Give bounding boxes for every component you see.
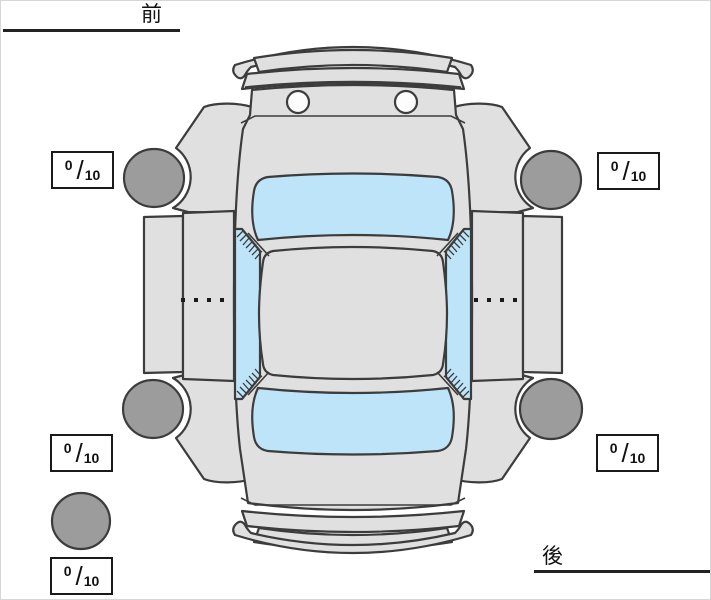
door-panel-left: [183, 211, 234, 381]
tire-score-front-right: 0 / 10: [597, 152, 660, 190]
headlight-washer-right: [395, 91, 417, 113]
tire-score-spare: 0 / 10: [50, 557, 113, 595]
score-value: 0: [64, 563, 72, 579]
rocker-panel-right: [523, 216, 562, 373]
score-max: 10: [630, 450, 646, 466]
tire-score-rear-left: 0 / 10: [50, 434, 113, 472]
score-max: 10: [84, 450, 100, 466]
score-max: 10: [84, 573, 100, 589]
score-separator: /: [621, 438, 628, 469]
rear-fascia: [242, 511, 464, 532]
spare-tire: [52, 493, 110, 549]
score-value: 0: [65, 157, 73, 173]
score-max: 10: [85, 167, 101, 183]
score-value: 0: [610, 440, 618, 456]
tire-rear-left: [123, 380, 183, 438]
tire-score-front-left: 0 / 10: [51, 151, 114, 189]
score-max: 10: [631, 168, 647, 184]
tire-rear-right: [520, 379, 582, 439]
tire-front-right: [521, 151, 581, 209]
rear-window: [252, 388, 454, 455]
car-condition-diagram: 前 後: [0, 0, 711, 600]
door-panel-right: [472, 211, 523, 381]
tire-front-left: [124, 149, 184, 207]
car-top-view: [1, 1, 711, 600]
rocker-panel-left: [144, 216, 183, 373]
score-separator: /: [75, 561, 82, 592]
tire-score-rear-right: 0 / 10: [596, 434, 659, 472]
side-window-right: [446, 229, 471, 399]
headlight-washer-left: [287, 91, 309, 113]
score-separator: /: [75, 438, 82, 469]
score-separator: /: [622, 156, 629, 187]
windshield: [252, 174, 454, 241]
roof: [259, 247, 447, 379]
score-value: 0: [64, 440, 72, 456]
side-window-left: [235, 229, 260, 399]
score-value: 0: [611, 158, 619, 174]
score-separator: /: [76, 155, 83, 186]
